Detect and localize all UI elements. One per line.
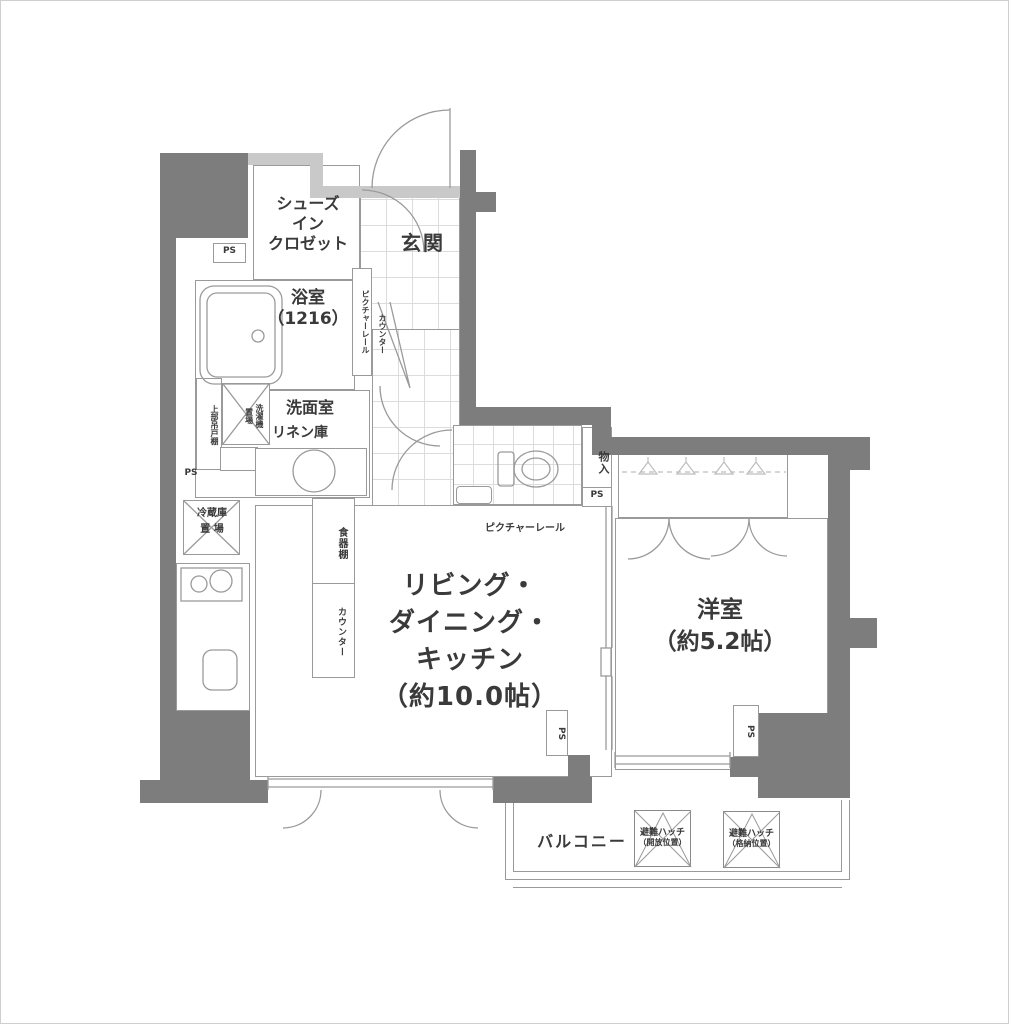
wall-entrance-tick xyxy=(476,192,496,212)
wall-bottom-center xyxy=(493,777,592,803)
wall-entrance-right xyxy=(460,150,476,410)
wall-ldk-top xyxy=(460,407,610,425)
washer-space-label: 洗濯機 置場 xyxy=(228,388,264,444)
cupboard-divider xyxy=(312,583,355,584)
shoes-closet-label: シューズ イン クロゼット xyxy=(256,194,360,254)
linen-label: リネン庫 xyxy=(258,424,342,442)
hatch-sublabel: （開放位置） xyxy=(629,837,696,848)
ps-label-storage: PS xyxy=(582,490,612,502)
toilet-hand-basin xyxy=(456,486,492,504)
balcony-rail-line xyxy=(513,887,842,888)
upper-cabinet-label: 上部吊戸棚 xyxy=(199,382,219,468)
western-room-label: 洋室 （約5.2帖） xyxy=(628,594,812,658)
western-room-closet xyxy=(618,452,788,518)
wall-ps-step xyxy=(730,757,758,777)
ldk-label: リビング・ ダイニング・ キッチン （約10.0帖） xyxy=(352,568,588,716)
ps-label-top: PS xyxy=(213,246,246,258)
storage-label: 物入 xyxy=(584,440,610,486)
wall-closet-top xyxy=(592,437,845,455)
washroom-label: 洗面室 xyxy=(268,398,352,419)
wall-left xyxy=(160,238,176,803)
wall-bottom-left-bar xyxy=(140,780,268,803)
ps-label-western: PS xyxy=(737,712,755,752)
picture-rail-ldk-label: ピクチャーレール xyxy=(470,522,580,535)
entrance-label: 玄関 xyxy=(385,230,461,256)
wall-bottom-center-step xyxy=(568,755,590,779)
fridge-space-label: 冷蔵庫 置 場 xyxy=(186,506,238,538)
evacuation-hatch-open: 避難ハッチ （開放位置） xyxy=(634,810,691,867)
kitchen-counter-label: カウンター xyxy=(322,592,346,672)
bathroom-label: 浴室 （1216） xyxy=(262,288,354,331)
kitchen-counter-unit xyxy=(176,563,250,711)
wall-top-left-block xyxy=(160,153,248,238)
hatch-sublabel: （格納位置） xyxy=(718,838,785,849)
entrance-door-swing xyxy=(372,108,450,188)
floor-plan: 避難ハッチ （開放位置） 避難ハッチ （格納位置） 玄関 シューズ イン クロゼ… xyxy=(0,0,1009,1024)
vanity-counter xyxy=(255,448,367,496)
cupboard-label: 食器棚 xyxy=(320,506,348,580)
balcony-label: バルコニー xyxy=(526,832,638,853)
ldk-balcony-window xyxy=(268,777,493,828)
wall-bottom-right-block xyxy=(758,713,850,798)
wall-bottom-left-block xyxy=(176,705,250,783)
evacuation-hatch-stored: 避難ハッチ （格納位置） xyxy=(723,811,780,868)
wall-right-tick xyxy=(850,618,877,648)
ps-label-ldk: PS xyxy=(548,716,566,752)
entrance-counter-label: カウンター xyxy=(371,294,387,374)
wall-right-top-ext xyxy=(845,437,870,470)
washroom-small-box xyxy=(220,447,258,471)
picture-rail-entrance-label: ピクチャーレール xyxy=(354,272,370,372)
ps-label-left: PS xyxy=(178,468,204,480)
